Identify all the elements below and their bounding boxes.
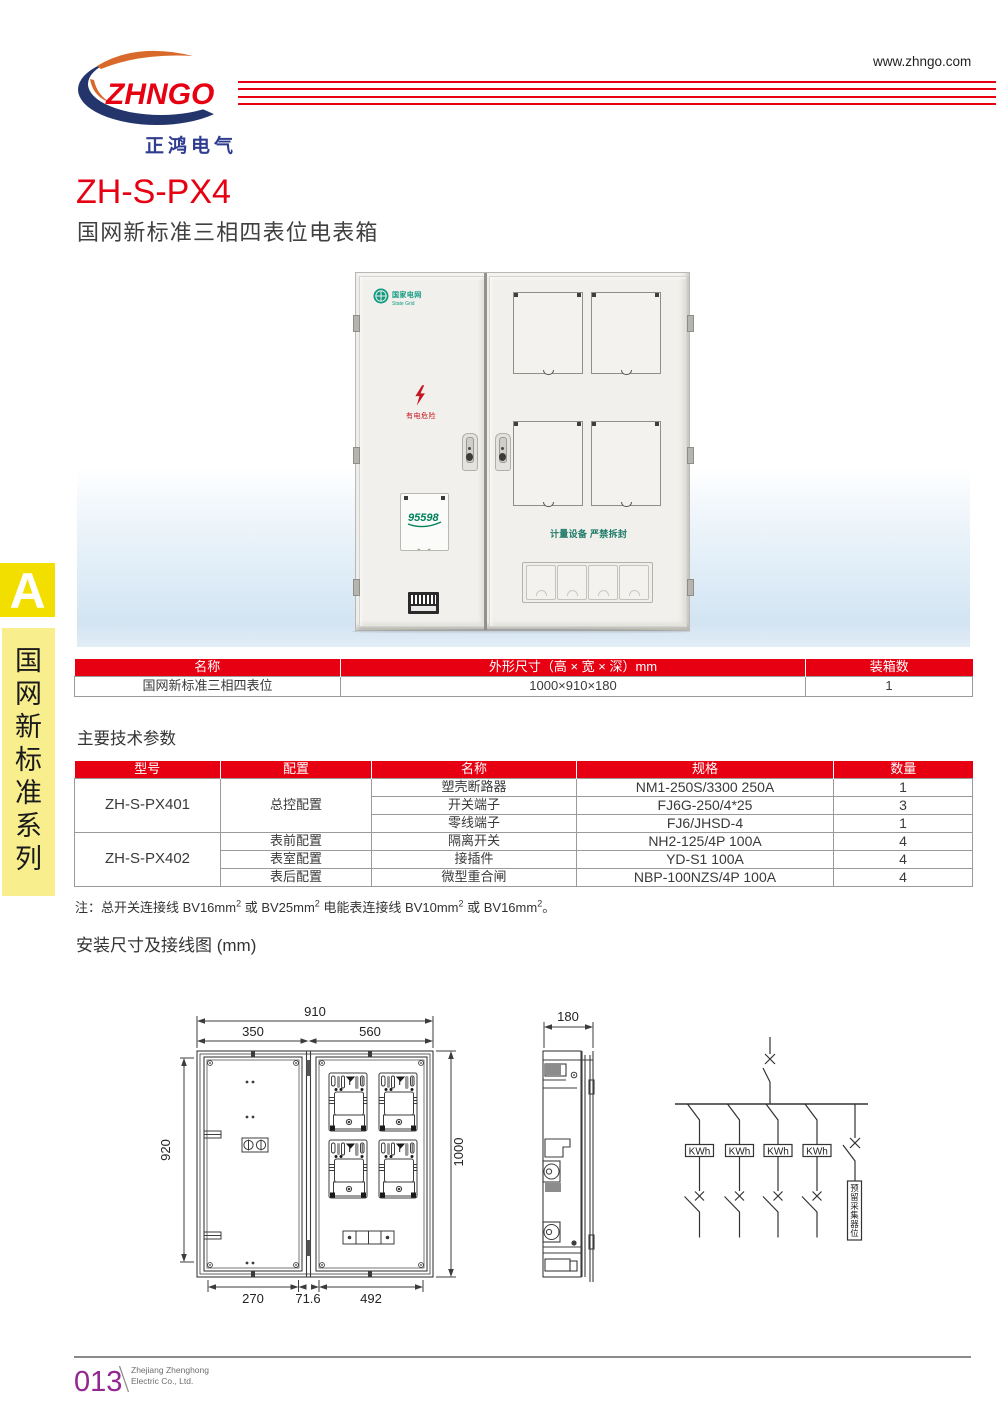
svg-text:KWh: KWh bbox=[767, 1147, 789, 1158]
svg-text:KWh: KWh bbox=[729, 1147, 751, 1158]
svg-text:1000: 1000 bbox=[451, 1138, 466, 1167]
svg-text:180: 180 bbox=[557, 1009, 579, 1024]
svg-text:350: 350 bbox=[242, 1024, 264, 1039]
svg-text:910: 910 bbox=[304, 1004, 326, 1019]
svg-text:KWh: KWh bbox=[806, 1147, 828, 1158]
svg-text:270: 270 bbox=[242, 1291, 264, 1306]
svg-text:492: 492 bbox=[360, 1291, 382, 1306]
svg-text:71.6: 71.6 bbox=[295, 1291, 320, 1306]
svg-text:位: 位 bbox=[850, 1228, 859, 1238]
svg-text:KWh: KWh bbox=[689, 1147, 711, 1158]
svg-text:国家电网: 国家电网 bbox=[392, 290, 422, 299]
svg-text:920: 920 bbox=[158, 1139, 173, 1161]
svg-text:560: 560 bbox=[359, 1024, 381, 1039]
svg-text:State Grid: State Grid bbox=[392, 301, 415, 307]
svg-text:95598: 95598 bbox=[408, 512, 439, 524]
